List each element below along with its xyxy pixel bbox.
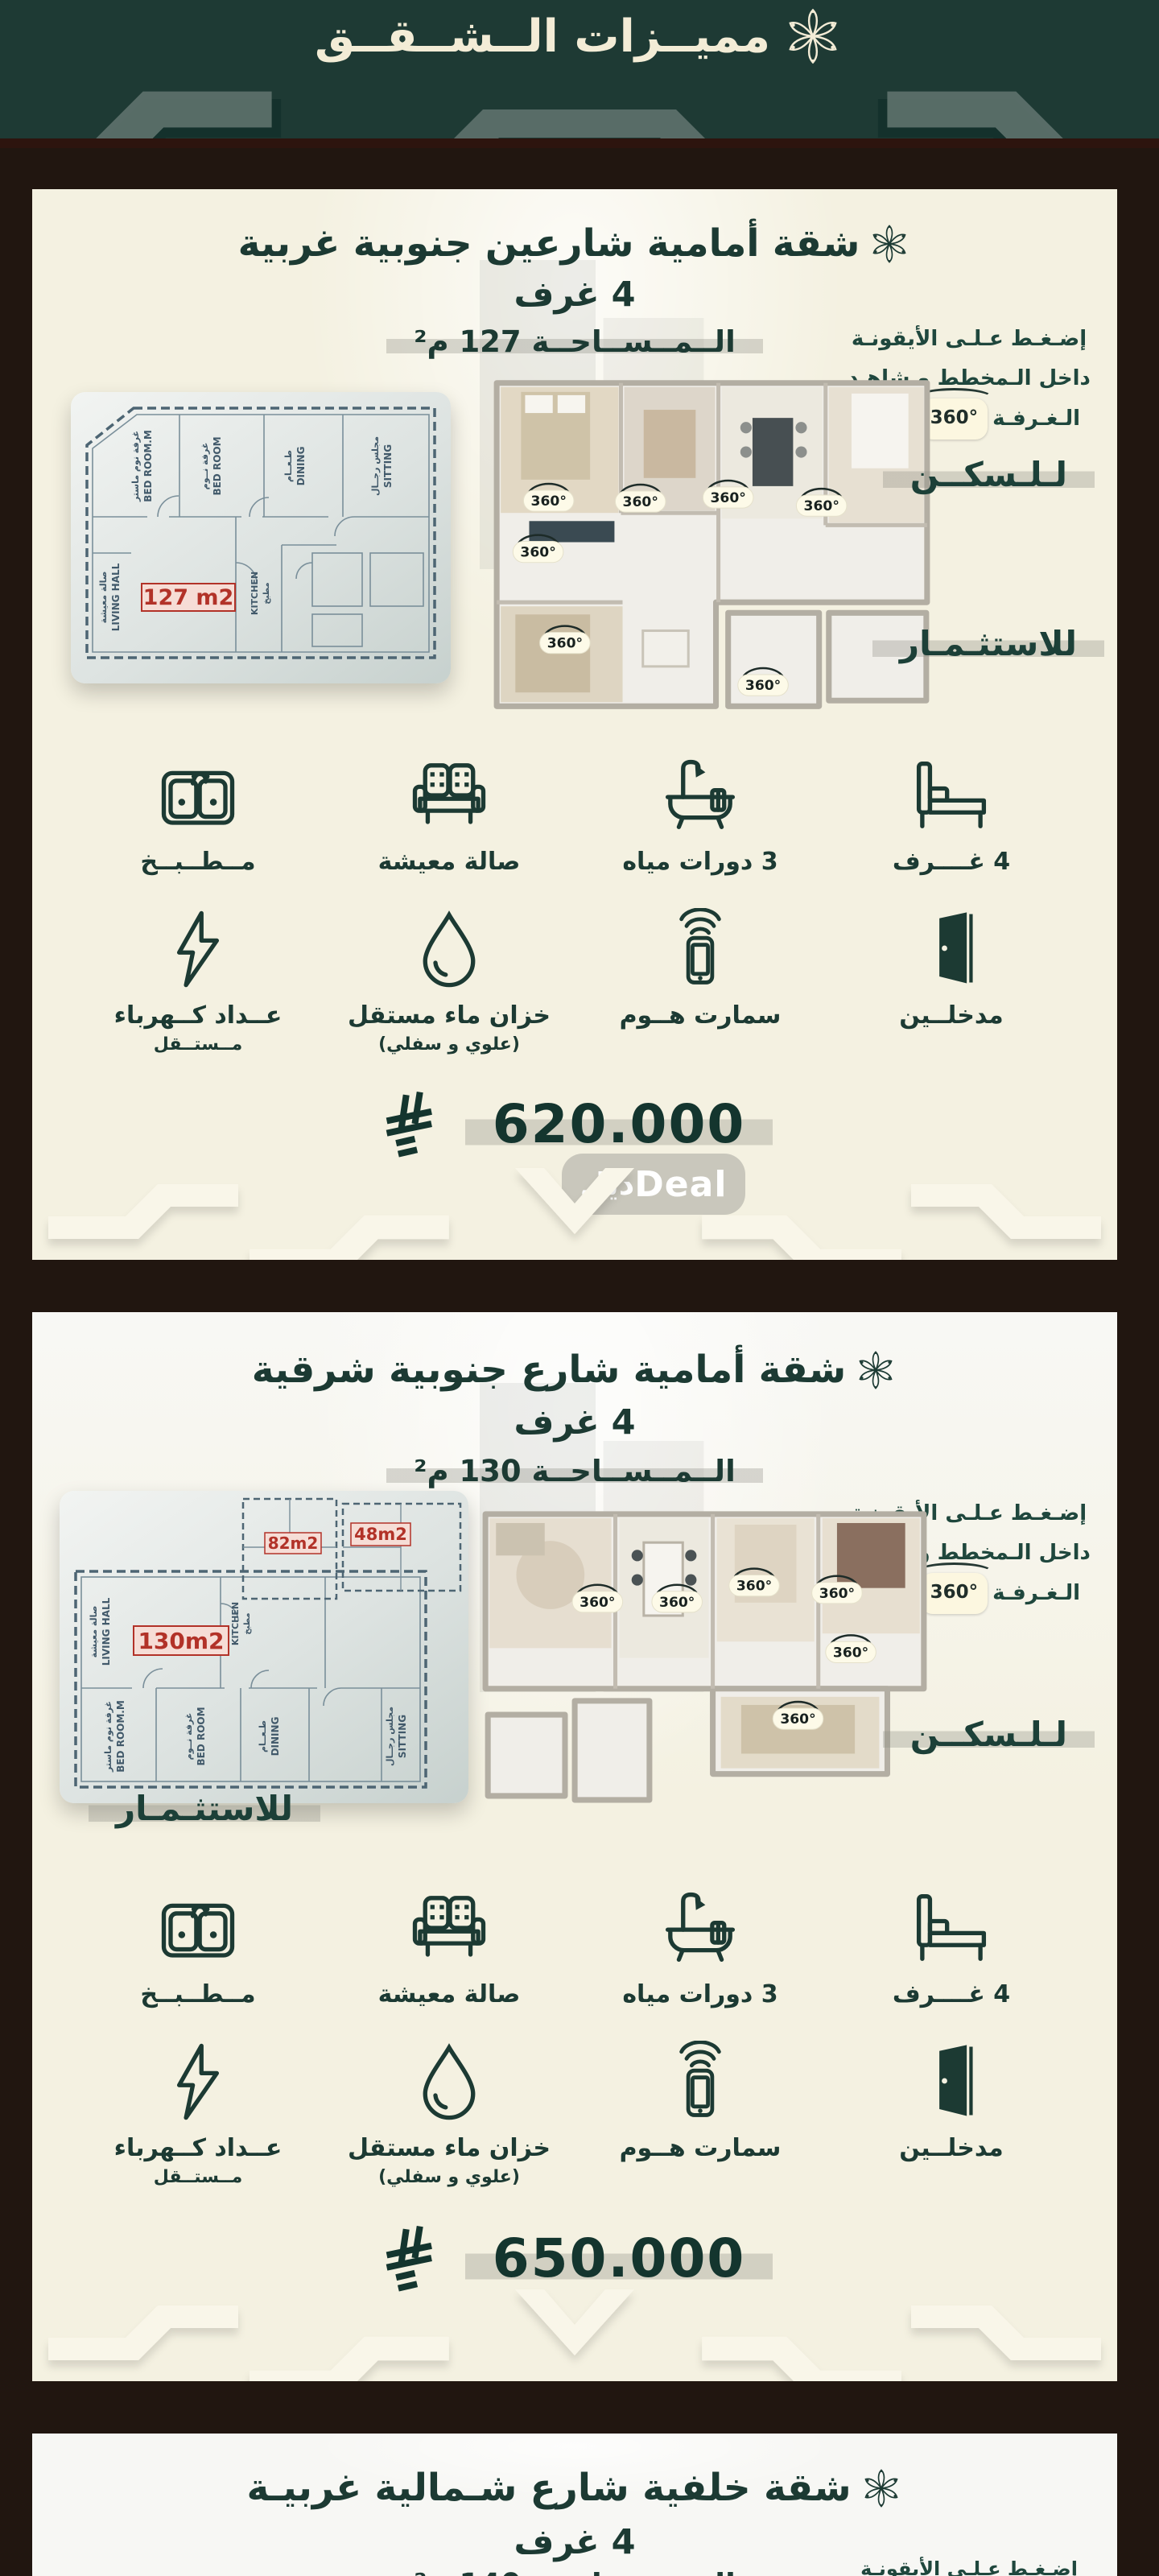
svg-text:360°: 360° <box>520 545 555 561</box>
feature-kitchen: مــطــبــخ <box>72 1887 324 2008</box>
card-title-row: شقة أمامية شارعين جنوبية غربية <box>32 221 1117 266</box>
svg-text:DINING: DINING <box>270 1717 281 1757</box>
bed-icon <box>910 754 992 836</box>
svg-text:360°: 360° <box>804 498 839 514</box>
svg-text:طـعــام: طـعــام <box>283 450 294 482</box>
instruction-360: إضـغـط عـلـى الأيقونـة داخل الـمخطط و شا… <box>832 2551 1106 2576</box>
svg-text:صالة معيشة: صالة معيشة <box>98 572 109 624</box>
label-for-investment: للاستثـمـار <box>89 1789 320 1828</box>
label-for-living: لـلـسكــن <box>883 455 1095 494</box>
svg-text:KITCHEN: KITCHEN <box>230 1602 241 1645</box>
feature-electric-meter: عــداد كــهرباء مــستــقل <box>72 908 324 1055</box>
card-title-row: شقة خلفية شارع شـمالية غربيـة <box>32 2466 1117 2510</box>
svg-text:BED ROOM: BED ROOM <box>196 1707 207 1765</box>
svg-text:SITTING: SITTING <box>397 1715 408 1758</box>
svg-text:مطبخ: مطبخ <box>262 582 271 604</box>
feature-bathrooms: 3 دورات مياه <box>575 1887 826 2008</box>
svg-text:غرفة نــوم: غرفة نــوم <box>200 443 210 490</box>
page-title: مميــزات الــشــقــق <box>315 10 770 63</box>
apartment-card-1: شقة أمامية شارعين جنوبية غربية 4 غرف الـ… <box>32 189 1117 1260</box>
bathtub-icon <box>659 1887 741 1969</box>
svg-text:صالة معيشة: صالة معيشة <box>89 1606 99 1658</box>
svg-text:360°: 360° <box>623 494 658 510</box>
svg-text:BED ROOM.M: BED ROOM.M <box>115 1700 126 1773</box>
svg-text:82m2: 82m2 <box>268 1534 319 1553</box>
card-title: شقة أمامية شارعين جنوبية غربية <box>238 221 860 266</box>
sar-currency-icon <box>377 2223 446 2293</box>
lightning-bolt-icon <box>157 2041 239 2123</box>
card-title: شقة أمامية شارع جنوبية شرقية <box>252 1348 846 1392</box>
svg-text:طـعــام: طـعــام <box>258 1720 268 1752</box>
svg-text:LIVING HALL: LIVING HALL <box>101 1597 112 1666</box>
price-row: 620.000 <box>32 1089 1117 1158</box>
deal-watermark: ديلDeal <box>562 1154 745 1215</box>
svg-text:LIVING HALL: LIVING HALL <box>110 563 122 631</box>
price-value: 620.000 <box>465 1093 773 1155</box>
svg-text:مطبخ: مطبخ <box>243 1612 252 1634</box>
flower-ornament-icon <box>868 222 911 266</box>
water-drop-icon <box>408 908 490 990</box>
features-row-2: عــداد كــهرباء مــستــقل خزان ماء مستقل… <box>72 2041 1077 2187</box>
flower-ornament-icon <box>860 2467 903 2510</box>
render-3d-plan: 360° 360° 360° 360° 360° 360° <box>473 1501 936 1827</box>
feature-smart-home: سمارت هــوم <box>575 908 826 1055</box>
flower-ornament-icon <box>782 5 844 68</box>
svg-text:360°: 360° <box>780 1711 815 1728</box>
sofa-icon <box>408 754 490 836</box>
svg-text:360°: 360° <box>547 636 583 652</box>
area-value: الــمــســاحــة 127 م² <box>386 324 763 359</box>
header-banner: مميــزات الــشــقــق <box>0 0 1159 148</box>
feature-water-tank: خزان ماء مستقل (علوي و سفلي) <box>324 908 575 1055</box>
kitchen-sink-icon <box>157 1887 239 1969</box>
svg-text:مجلس رجــال: مجلس رجــال <box>370 436 381 496</box>
door-icon <box>910 908 992 990</box>
apartment-card-2: شقة أمامية شارع جنوبية شرقية 4 غرف الــم… <box>32 1312 1117 2381</box>
feature-kitchen: مــطــبــخ <box>72 754 324 876</box>
rooms-count: 4 غرف <box>32 275 1117 315</box>
plan-area-label: 130m2 82m2 48m2 <box>134 1523 410 1655</box>
feature-electric-meter: عــداد كــهرباء مــستــقل <box>72 2041 324 2187</box>
svg-text:360°: 360° <box>736 1579 772 1595</box>
svg-text:130m2: 130m2 <box>138 1628 224 1654</box>
water-drop-icon <box>408 2041 490 2123</box>
kitchen-sink-icon <box>157 754 239 836</box>
area-value: الــمــســاحــة 130 م² <box>386 1454 763 1488</box>
card-title: شقة خلفية شارع شـمالية غربيـة <box>246 2466 851 2510</box>
svg-text:غرفة نــوم: غرفة نــوم <box>184 1713 194 1761</box>
apartment-card-3: شقة خلفية شارع شـمالية غربيـة 4 غرف الــ… <box>32 2434 1117 2576</box>
feature-bedrooms: 4 غــــرف <box>826 1887 1077 2008</box>
svg-text:DINING: DINING <box>295 447 307 486</box>
svg-text:مجلس رجــال: مجلس رجــال <box>385 1707 395 1766</box>
area-line: الــمــســاحــة 130 م² <box>32 1454 1117 1488</box>
smartphone-wifi-icon <box>659 908 741 990</box>
svg-text:BED ROOM.M: BED ROOM.M <box>142 430 154 502</box>
svg-text:غرفة نوم ماستر: غرفة نوم ماستر <box>103 1701 113 1773</box>
feature-living-room: صالة معيشة <box>324 754 575 876</box>
plan-area-label: 127 m2 <box>142 584 235 611</box>
floor-plan-blueprint: BED ROOM.M غرفة نوم ماستر BED ROOM غرفة … <box>71 392 451 683</box>
feature-two-entrances: مدخلــين <box>826 2041 1077 2187</box>
svg-text:127 m2: 127 m2 <box>143 585 234 610</box>
svg-text:360°: 360° <box>833 1645 868 1661</box>
feature-water-tank: خزان ماء مستقل (علوي و سفلي) <box>324 2041 575 2187</box>
feature-bathrooms: 3 دورات مياه <box>575 754 826 876</box>
svg-text:360°: 360° <box>659 1595 695 1611</box>
rooms-count: 4 غرف <box>32 1402 1117 1443</box>
svg-text:360°: 360° <box>710 490 745 506</box>
svg-text:360°: 360° <box>745 678 781 694</box>
floor-plan-blueprint: LIVING HALL صالة معيشة KITCHEN مطبخ BED … <box>60 1491 468 1803</box>
price-row: 650.000 <box>32 2223 1117 2293</box>
flower-ornament-icon <box>854 1348 897 1392</box>
area-value: الــمــســاحــة 140 م² <box>386 2567 763 2576</box>
feature-two-entrances: مدخلــين <box>826 908 1077 1055</box>
price-value: 650.000 <box>465 2227 773 2289</box>
door-icon <box>910 2041 992 2123</box>
header-title-row: مميــزات الــشــقــق <box>0 5 1159 68</box>
svg-text:SITTING: SITTING <box>382 444 394 488</box>
card-title-row: شقة أمامية شارع جنوبية شرقية <box>32 1348 1117 1392</box>
svg-text:360°: 360° <box>819 1586 855 1602</box>
svg-text:360°: 360° <box>579 1595 615 1611</box>
feature-smart-home: سمارت هــوم <box>575 2041 826 2187</box>
svg-text:360°: 360° <box>531 493 567 510</box>
smartphone-wifi-icon <box>659 2041 741 2123</box>
svg-text:KITCHEN: KITCHEN <box>250 572 260 615</box>
feature-living-room: صالة معيشة <box>324 1887 575 2008</box>
render-3d-plan: 360° 360° 360° 360° 360° 360° 360° <box>485 370 939 712</box>
features-row-1: مــطــبــخ صالة معيشة 3 دورات مياه 4 غــ… <box>72 754 1077 876</box>
features-row-1: مــطــبــخ صالة معيشة 3 دورات مياه 4 غــ… <box>72 1887 1077 2008</box>
bathtub-icon <box>659 754 741 836</box>
svg-text:BED ROOM: BED ROOM <box>212 436 223 495</box>
svg-text:غرفة نوم ماستر: غرفة نوم ماستر <box>130 431 141 502</box>
label-for-investment: للاستثـمـار <box>872 624 1104 663</box>
lightning-bolt-icon <box>157 908 239 990</box>
feature-bedrooms: 4 غــــرف <box>826 754 1077 876</box>
sar-currency-icon <box>377 1089 446 1158</box>
features-row-2: عــداد كــهرباء مــستــقل خزان ماء مستقل… <box>72 908 1077 1055</box>
label-for-living: لـلـسكــن <box>883 1715 1095 1754</box>
sofa-icon <box>408 1887 490 1969</box>
svg-text:48m2: 48m2 <box>354 1525 407 1544</box>
bed-icon <box>910 1887 992 1969</box>
